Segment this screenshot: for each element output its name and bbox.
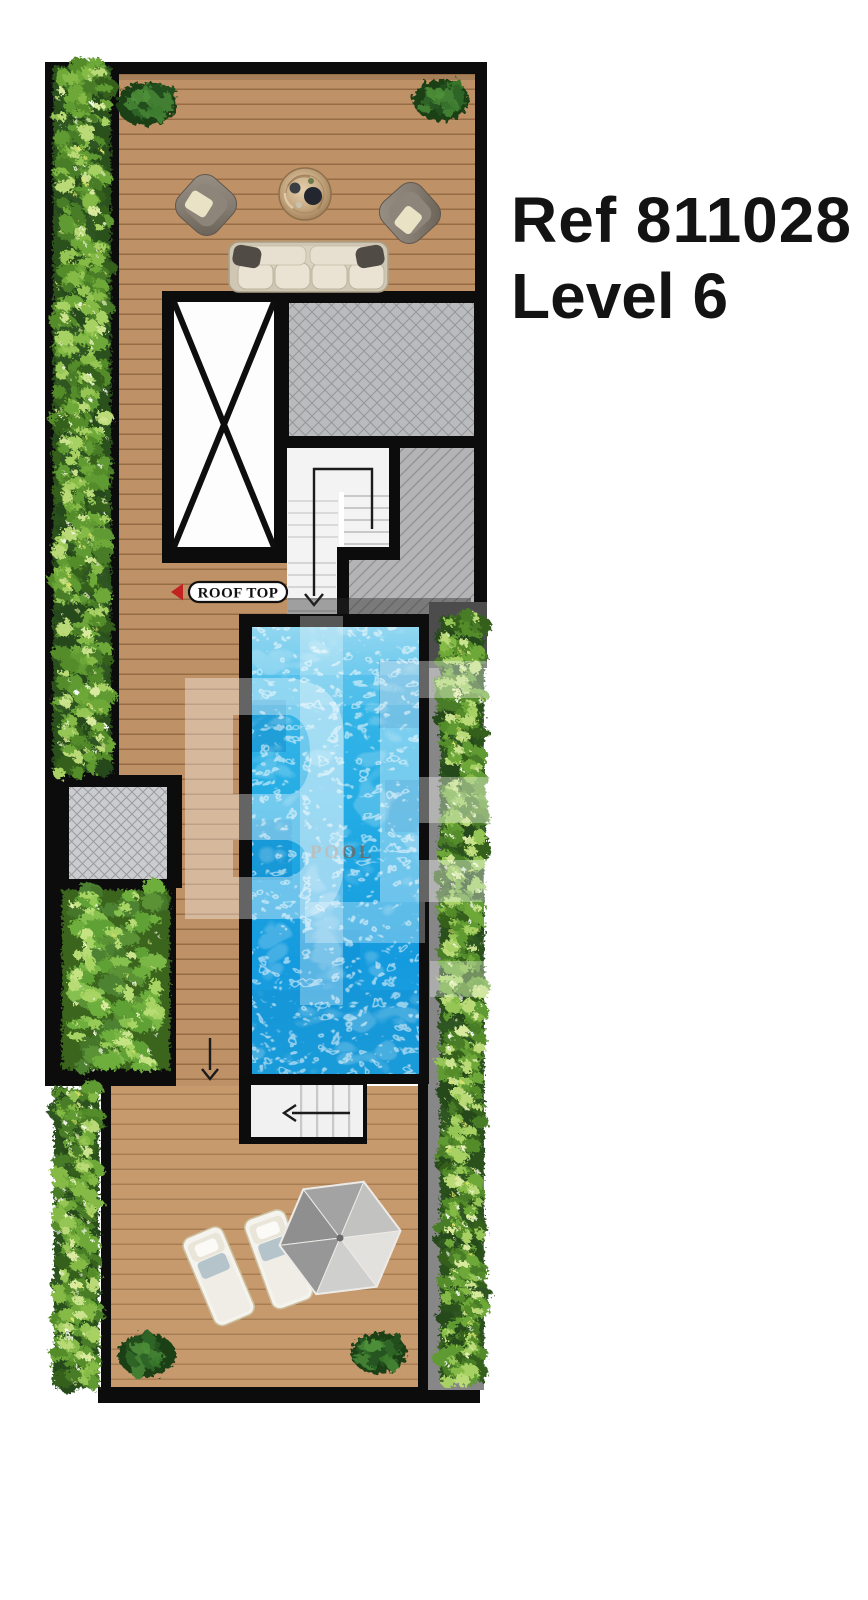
- svg-text:ROOF TOP: ROOF TOP: [198, 586, 279, 602]
- svg-text:Ref 811028: Ref 811028: [511, 184, 852, 256]
- svg-text:Level 6: Level 6: [511, 260, 728, 332]
